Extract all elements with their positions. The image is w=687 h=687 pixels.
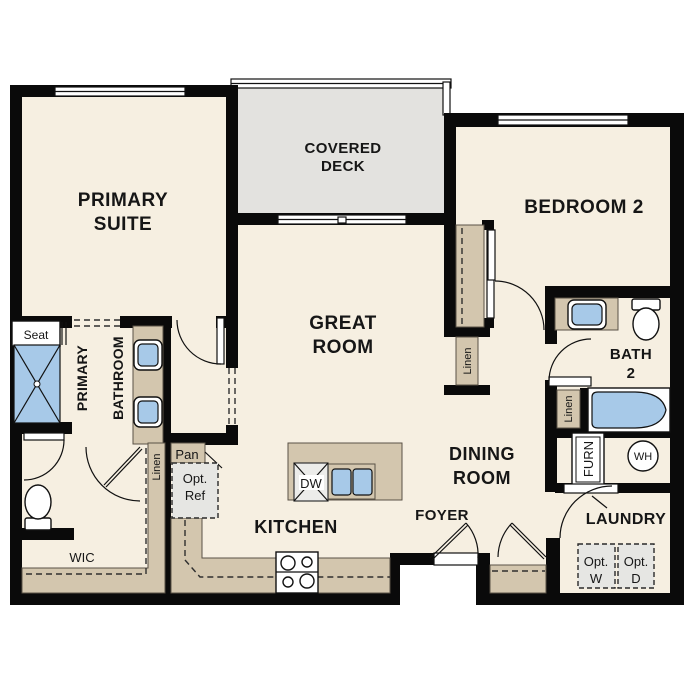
seat-label: Seat [24, 328, 49, 342]
foyer-label: FOYER [415, 507, 469, 524]
covered-deck-label: COVERED [305, 140, 382, 157]
opt-dryer-label: Opt. [624, 554, 649, 569]
linen-hall-label: Linen [462, 348, 474, 375]
dishwasher-label: DW [300, 476, 322, 491]
laundry-label: LAUNDRY [586, 511, 666, 528]
primary-sink-2 [134, 397, 162, 427]
great-room-label-2: ROOM [312, 337, 373, 358]
toilet-fixture-wic [25, 485, 51, 530]
bath2-label: BATH [610, 346, 652, 363]
opt-washer-label: Opt. [584, 554, 609, 569]
wic-label: WIC [69, 550, 94, 565]
great-room-label: GREAT [309, 313, 377, 334]
water-heater-label: WH [634, 451, 652, 463]
opt-dryer-label-2: D [631, 571, 640, 586]
covered-deck-label-2: DECK [321, 158, 365, 175]
water-closet-door [24, 433, 64, 440]
primary-sink-1 [134, 340, 162, 370]
bath2-sink [568, 300, 606, 329]
range-stove [276, 552, 318, 593]
bath2-label-2: 2 [627, 365, 636, 382]
dining-room-label-2: ROOM [453, 468, 511, 488]
opt-ref-label: Opt. [183, 471, 208, 486]
toilet-fixture-bath2 [632, 299, 660, 340]
floor-plan: PRIMARY SUITE COVERED DECK BEDROOM 2 GRE… [0, 0, 687, 687]
floor-plan-drawing: PRIMARY SUITE COVERED DECK BEDROOM 2 GRE… [0, 0, 687, 687]
dining-room-label: DINING [449, 444, 515, 464]
linen-primary-label: Linen [151, 454, 163, 481]
bedroom2-closet [456, 225, 484, 327]
bedroom2-label: BEDROOM 2 [524, 197, 644, 218]
bedroom2-door [488, 230, 495, 280]
primary-suite-door [217, 318, 224, 364]
bath2-door [549, 377, 591, 386]
primary-suite-label: PRIMARY [78, 190, 168, 211]
foyer-coat-closet [490, 565, 546, 593]
furnace-closet-door [564, 484, 618, 493]
bathtub-fixture [588, 388, 670, 432]
primary-bathroom-label: PRIMARY [74, 345, 90, 412]
pantry-label: Pan [175, 447, 198, 462]
opt-washer-label-2: W [590, 571, 603, 586]
opt-ref-label-2: Ref [185, 488, 206, 503]
kitchen-label: KITCHEN [254, 517, 338, 537]
furnace-label: FURN [581, 441, 596, 477]
primary-suite-label-2: SUITE [94, 214, 152, 235]
linen-bath2-label: Linen [563, 396, 575, 423]
primary-bathroom-label-2: BATHROOM [110, 336, 126, 420]
